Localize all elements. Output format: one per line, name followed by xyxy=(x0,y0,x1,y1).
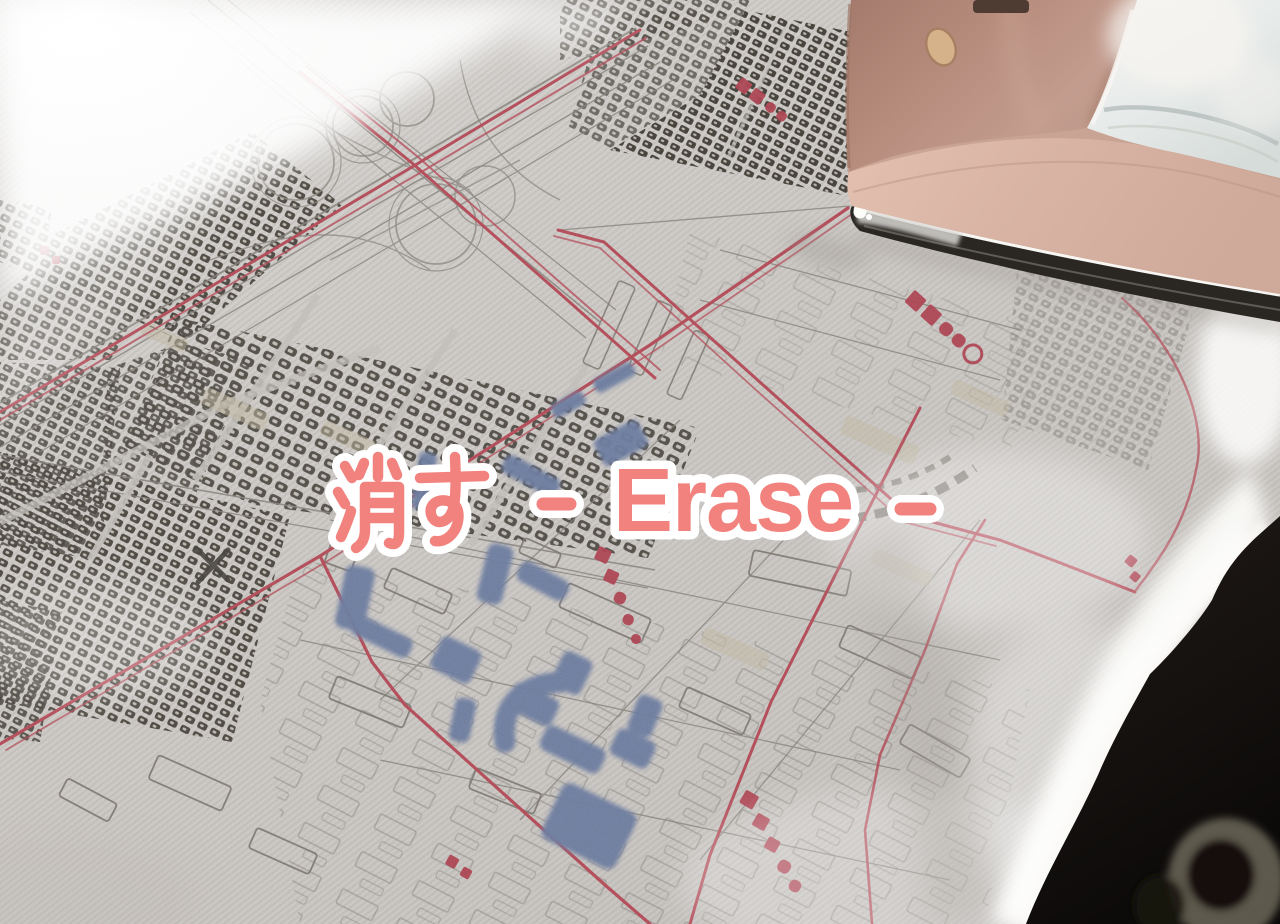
svg-text:Erase: Erase xyxy=(613,451,853,551)
